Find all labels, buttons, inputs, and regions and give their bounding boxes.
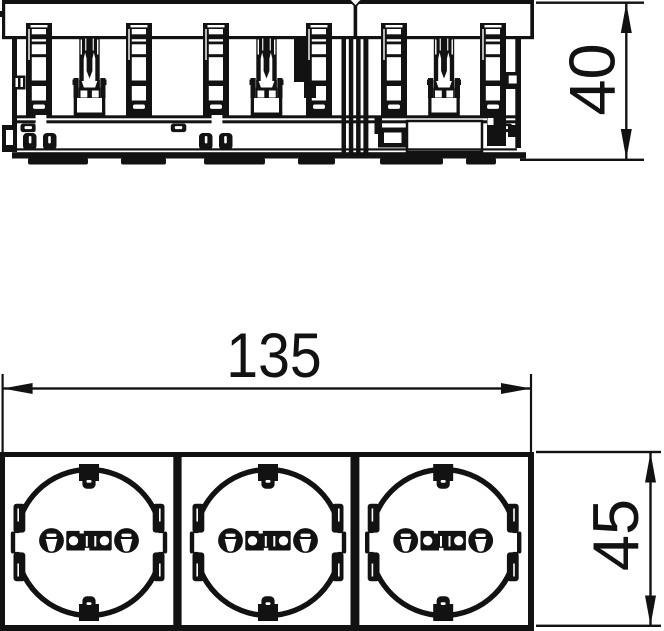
svg-text:45: 45 (579, 499, 652, 571)
svg-text:40: 40 (556, 43, 629, 115)
svg-text:135: 135 (226, 321, 322, 391)
